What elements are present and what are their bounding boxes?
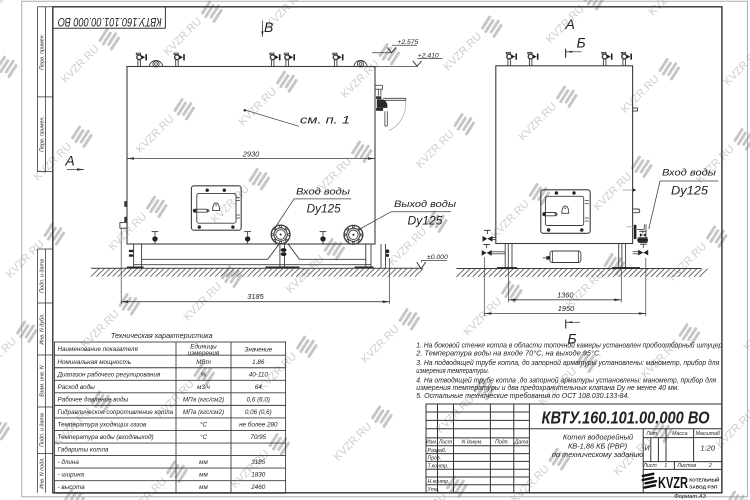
svg-text:Наименование показателя: Наименование показателя xyxy=(58,346,139,353)
svg-text:Взам. инв. N: Взам. инв. N xyxy=(40,365,46,397)
svg-text:KVZR: KVZR xyxy=(658,475,688,492)
svg-text:3185: 3185 xyxy=(251,459,266,466)
svg-text:Рабочее давление воды: Рабочее давление воды xyxy=(58,395,129,403)
svg-text:Т.контр.: Т.контр. xyxy=(428,463,449,469)
svg-text:Н.контр.: Н.контр. xyxy=(428,479,450,485)
svg-text:KVZR.RU: KVZR.RU xyxy=(517,101,560,144)
svg-text:МПа (кгс/см2): МПа (кгс/см2) xyxy=(183,396,224,403)
svg-text:KVZR.RU: KVZR.RU xyxy=(714,408,750,451)
svg-text:KVZR.RU: KVZR.RU xyxy=(722,46,750,89)
svg-text:KVZR.RU: KVZR.RU xyxy=(462,296,505,339)
svg-text:Подп. и дата: Подп. и дата xyxy=(40,259,46,293)
svg-text:3. На подводящей трубе котла,: 3. На подводящей трубе котла, до запорно… xyxy=(416,359,719,367)
svg-text:мм: мм xyxy=(199,472,208,479)
svg-text:Подп.: Подп. xyxy=(495,440,509,446)
svg-text:Dy125: Dy125 xyxy=(408,215,444,227)
svg-text:Лит.: Лит. xyxy=(645,431,658,437)
svg-text:KVZR.RU: KVZR.RU xyxy=(647,0,690,18)
svg-text:- длина: - длина xyxy=(58,458,80,466)
svg-text:Б: Б xyxy=(576,35,585,51)
svg-text:Пров.: Пров. xyxy=(428,456,442,462)
svg-text:Масса: Масса xyxy=(672,431,687,437)
svg-text:не более 280: не более 280 xyxy=(239,421,278,429)
svg-text:KVZR.RU: KVZR.RU xyxy=(79,308,122,351)
svg-text:KVZR.RU: KVZR.RU xyxy=(694,143,737,186)
svg-text:4. На отводящей трубе котла ,: 4. На отводящей трубе котла ,до запорной… xyxy=(416,376,716,384)
svg-text:Dy125: Dy125 xyxy=(307,204,342,216)
svg-text:измерения температуры и два пр: измерения температуры и два предохраните… xyxy=(416,384,679,392)
svg-text:Подп. и дата: Подп. и дата xyxy=(40,413,46,447)
svg-text:KVZR.RU: KVZR.RU xyxy=(332,421,375,464)
svg-text:Диапазон рабочего регулировани: Диапазон рабочего регулирования xyxy=(57,370,161,378)
svg-text:KVZR.RU: KVZR.RU xyxy=(414,128,457,171)
svg-text:см. п. 1: см. п. 1 xyxy=(300,115,350,127)
svg-text:КВТУ.160.101.00.000 ВО: КВТУ.160.101.00.000 ВО xyxy=(58,15,162,29)
svg-text:0,06 (0,6): 0,06 (0,6) xyxy=(245,409,272,416)
svg-text:Габариты котла: Габариты котла xyxy=(58,446,110,454)
svg-text:Лист: Лист xyxy=(642,463,657,469)
svg-text:2. Температура воды на входе: 2. Температура воды на входе 70°С, на вы… xyxy=(415,350,601,358)
svg-text:Вход воды: Вход воды xyxy=(296,186,350,197)
svg-text:KVZR.RU: KVZR.RU xyxy=(237,86,280,129)
svg-text:KVZR.RU: KVZR.RU xyxy=(742,311,750,354)
svg-text:МВт: МВт xyxy=(196,359,211,366)
svg-text:Инв. N дубл.: Инв. N дубл. xyxy=(40,313,46,344)
svg-text:измерения: измерения xyxy=(188,350,220,357)
svg-text:1:20: 1:20 xyxy=(700,444,715,453)
svg-text:Перв. примен.: Перв. примен. xyxy=(40,34,46,70)
svg-text:Dy125: Dy125 xyxy=(671,186,709,198)
svg-text:+2.575: +2.575 xyxy=(397,39,418,46)
svg-text:А: А xyxy=(64,153,74,169)
svg-text:- высота: - высота xyxy=(58,484,86,491)
svg-text:KVZR.RU: KVZR.RU xyxy=(509,463,552,500)
svg-text:KVZR.RU: KVZR.RU xyxy=(442,31,485,74)
svg-text:Инв. N подл.: Инв. N подл. xyxy=(40,457,46,489)
svg-text:±0.000: ±0.000 xyxy=(427,254,448,261)
svg-text:Разраб.: Разраб. xyxy=(428,448,447,454)
svg-text:KVZR.RU: KVZR.RU xyxy=(0,0,27,16)
svg-text:°С: °С xyxy=(200,421,208,429)
svg-text:Номинальная мощность: Номинальная мощность xyxy=(58,359,132,366)
svg-text:2: 2 xyxy=(708,463,712,469)
svg-text:Листов: Листов xyxy=(676,463,696,469)
svg-text:КОТЕЛЬНЫЙ: КОТЕЛЬНЫЙ xyxy=(689,475,720,483)
svg-text:Выход воды: Выход воды xyxy=(394,199,456,210)
svg-text:Изм.: Изм. xyxy=(426,440,437,446)
svg-text:Лист: Лист xyxy=(438,440,453,446)
svg-text:5. Остальные технические треб: 5. Остальные технические требования по О… xyxy=(416,392,629,400)
svg-text:Расход воды: Расход воды xyxy=(58,383,96,391)
svg-text:В: В xyxy=(264,19,273,35)
svg-text:МПа (кгс/см2): МПа (кгс/см2) xyxy=(183,409,224,416)
svg-text:1. На боковой стенке котла в: 1. На боковой стенке котла в области топ… xyxy=(416,341,722,349)
svg-text:ЗАВОД РЭП: ЗАВОД РЭП xyxy=(689,484,718,490)
svg-text:KVZR.RU: KVZR.RU xyxy=(359,323,402,366)
svg-text:Формат А3: Формат А3 xyxy=(674,494,706,500)
svg-text:2460: 2460 xyxy=(250,484,266,491)
svg-text:1830: 1830 xyxy=(251,472,266,479)
svg-text:по техническому заданию: по техническому заданию xyxy=(552,450,644,459)
svg-text:1950: 1950 xyxy=(558,304,575,313)
svg-text:1,86: 1,86 xyxy=(252,359,265,366)
svg-text:0,6 (6,0): 0,6 (6,0) xyxy=(247,396,270,403)
svg-text:Перв. примен.: Перв. примен. xyxy=(40,116,46,152)
svg-text:70/95: 70/95 xyxy=(250,434,266,441)
svg-text:KVZR.RU: KVZR.RU xyxy=(107,211,150,254)
svg-text:KVZR.RU: KVZR.RU xyxy=(0,336,19,379)
svg-text:Техническая характеристика: Техническая характеристика xyxy=(111,331,213,340)
svg-text:1: 1 xyxy=(664,463,667,469)
svg-text:- ширина: - ширина xyxy=(58,472,85,479)
svg-text:KVZR.RU: KVZR.RU xyxy=(127,476,170,500)
svg-text:3185: 3185 xyxy=(247,292,264,301)
svg-text:N докум.: N докум. xyxy=(462,440,483,446)
svg-text:мм: мм xyxy=(199,459,208,466)
svg-text:KVZR.RU: KVZR.RU xyxy=(592,171,635,214)
svg-text:Вход воды: Вход воды xyxy=(662,168,716,179)
svg-text:мм: мм xyxy=(199,484,208,491)
svg-text:Масштаб: Масштаб xyxy=(696,431,721,437)
svg-text:2930: 2930 xyxy=(242,149,260,158)
svg-text:°С: °С xyxy=(200,433,208,441)
svg-text:Дата: Дата xyxy=(514,440,529,446)
svg-text:40-110: 40-110 xyxy=(249,371,269,378)
svg-text:Котел водогрейный: Котел водогрейный xyxy=(563,433,633,442)
svg-text:м3/ч: м3/ч xyxy=(197,384,211,391)
svg-text:KVZR.RU: KVZR.RU xyxy=(209,183,252,226)
svg-text:Утв.: Утв. xyxy=(428,487,440,493)
svg-text:KVZR.RU: KVZR.RU xyxy=(134,113,177,156)
svg-text:Значение: Значение xyxy=(244,347,272,354)
svg-text:KVZR.RU: KVZR.RU xyxy=(162,16,205,59)
svg-text:КВТУ.160.101.00.000 ВО: КВТУ.160.101.00.000 ВО xyxy=(542,407,710,427)
svg-text:А: А xyxy=(565,16,575,32)
svg-text:измерения температуры.: измерения температуры. xyxy=(416,368,489,375)
svg-text:64: 64 xyxy=(255,384,263,391)
svg-text:Температура воды (вход/выход): Температура воды (вход/выход) xyxy=(58,433,154,441)
svg-text:Температура уходящих газов: Температура уходящих газов xyxy=(58,421,147,429)
svg-text:KVZR.RU: KVZR.RU xyxy=(387,226,430,269)
svg-text:KVZR.RU: KVZR.RU xyxy=(59,43,102,86)
svg-text:%: % xyxy=(201,371,207,378)
svg-text:Гидравлическое сопротивление к: Гидравлическое сопротивление котла xyxy=(58,408,174,416)
svg-text:KVZR.RU: KVZR.RU xyxy=(619,73,662,116)
svg-text:1360: 1360 xyxy=(557,290,574,299)
